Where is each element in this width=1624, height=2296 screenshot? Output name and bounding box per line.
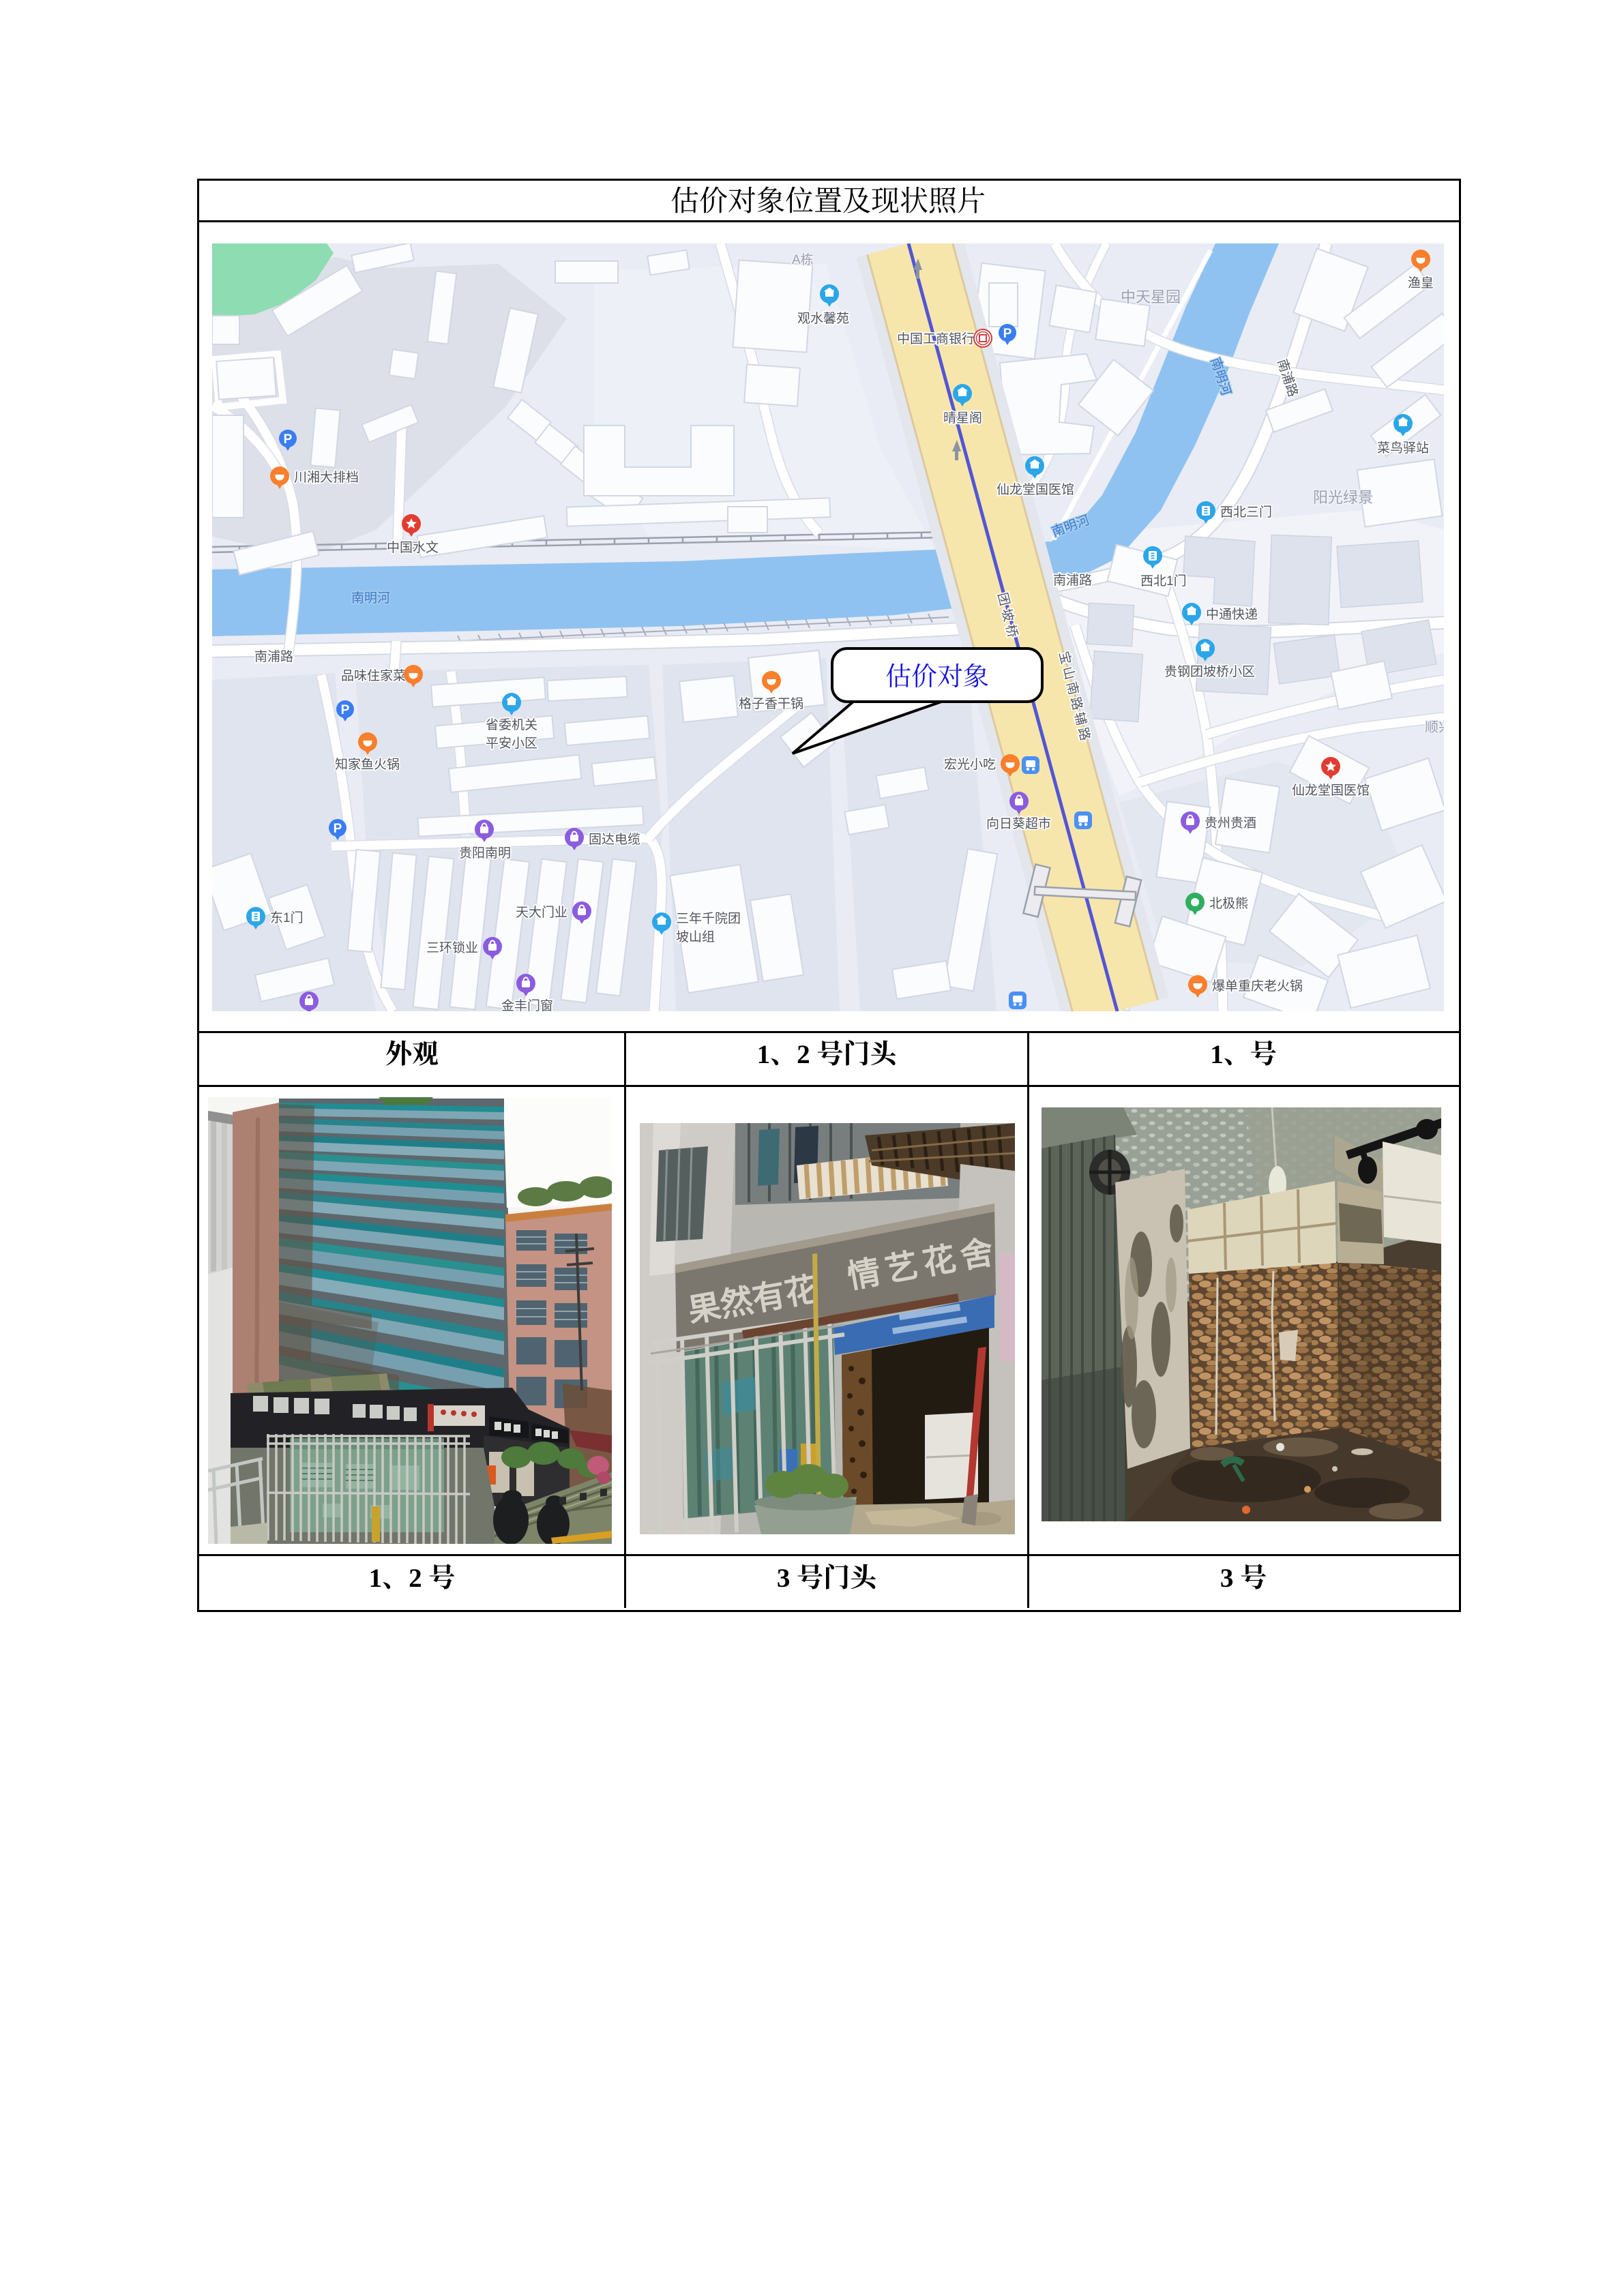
svg-text:菜鸟驿站: 菜鸟驿站 [1377, 441, 1429, 456]
svg-text:三年千院团: 三年千院团 [676, 911, 741, 926]
svg-text:阳光绿景: 阳光绿景 [1313, 489, 1373, 506]
svg-text:品味住家菜: 品味住家菜 [341, 668, 406, 683]
svg-text:知家鱼火锅: 知家鱼火锅 [335, 757, 400, 772]
svg-text:坡山组: 坡山组 [676, 929, 715, 944]
svg-text:西北1门: 西北1门 [1140, 573, 1187, 588]
svg-text:估价对象: 估价对象 [885, 663, 989, 691]
svg-text:天大门业: 天大门业 [516, 905, 567, 920]
svg-text:贵阳南明: 贵阳南明 [459, 846, 511, 861]
svg-text:固达电缆: 固达电缆 [589, 832, 640, 847]
svg-text:中通快递: 中通快递 [1206, 607, 1258, 622]
svg-text:东1门: 东1门 [270, 910, 304, 925]
svg-text:A栋: A栋 [792, 252, 814, 267]
svg-text:南浦路: 南浦路 [1053, 573, 1092, 588]
svg-text:中国工商银行: 中国工商银行 [897, 331, 975, 346]
svg-text:北极熊: 北极熊 [1209, 896, 1248, 911]
svg-text:仙龙堂国医馆: 仙龙堂国医馆 [1292, 783, 1370, 798]
svg-text:宏光小吃: 宏光小吃 [944, 757, 996, 772]
svg-text:爆单重庆老火锅: 爆单重庆老火锅 [1212, 979, 1303, 994]
svg-text:观水馨苑: 观水馨苑 [797, 311, 849, 326]
svg-text:顺兴: 顺兴 [1425, 719, 1444, 735]
svg-text:晴星阁: 晴星阁 [943, 411, 982, 426]
svg-text:贵钢团坡桥小区: 贵钢团坡桥小区 [1164, 664, 1255, 679]
svg-text:金丰门窗: 金丰门窗 [501, 998, 553, 1011]
svg-text:贵州贵酒: 贵州贵酒 [1205, 816, 1256, 831]
svg-text:中天星园: 中天星园 [1121, 288, 1181, 305]
svg-text:川湘大排档: 川湘大排档 [294, 470, 359, 485]
svg-text:三环锁业: 三环锁业 [426, 940, 478, 955]
svg-text:渔皇: 渔皇 [1408, 275, 1434, 290]
svg-text:中国水文: 中国水文 [387, 540, 439, 555]
svg-text:南浦路: 南浦路 [254, 649, 293, 664]
svg-text:省委机关: 省委机关 [486, 717, 537, 732]
svg-text:西北三门: 西北三门 [1220, 505, 1272, 520]
svg-text:向日葵超市: 向日葵超市 [986, 816, 1051, 831]
svg-text:格子香干锅: 格子香干锅 [739, 696, 803, 711]
svg-text:平安小区: 平安小区 [486, 736, 537, 751]
svg-text:南明河: 南明河 [351, 591, 390, 606]
svg-text:仙龙堂国医馆: 仙龙堂国医馆 [996, 482, 1074, 497]
